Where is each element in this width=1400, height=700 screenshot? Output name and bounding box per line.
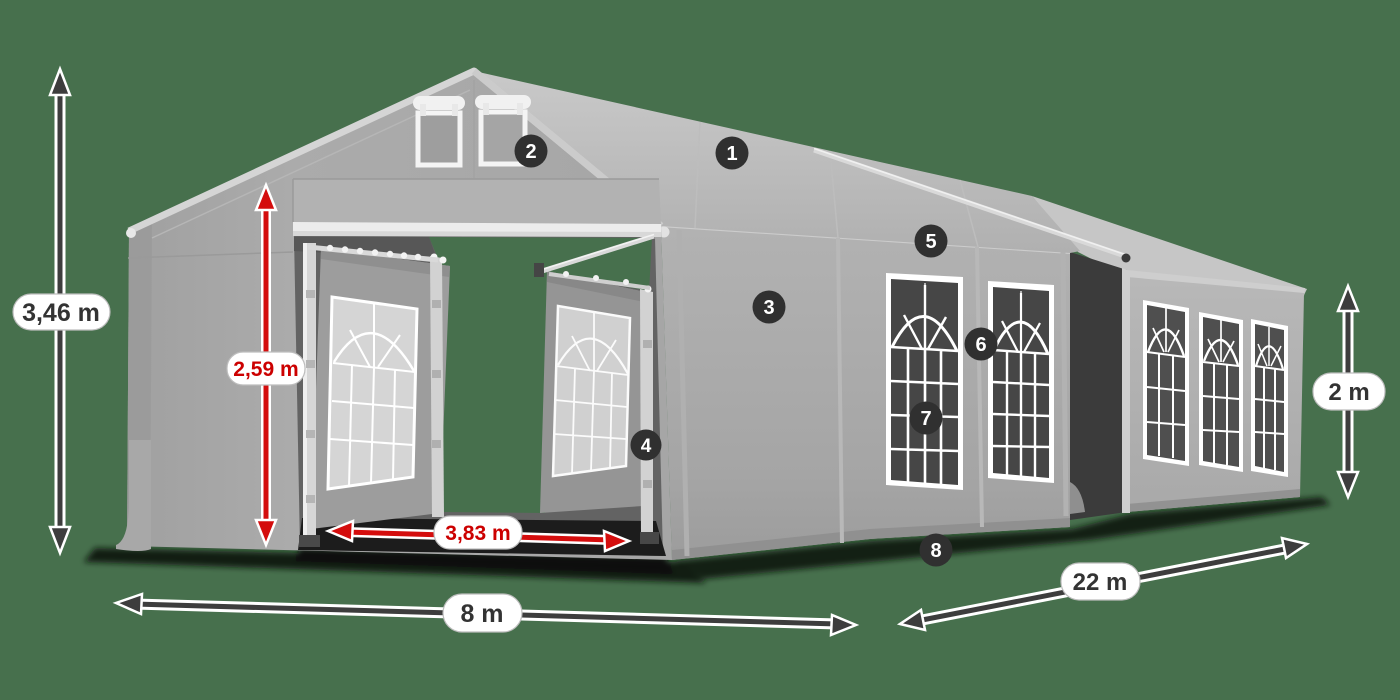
svg-text:1: 1	[726, 143, 737, 165]
svg-text:2: 2	[525, 141, 536, 163]
svg-text:3: 3	[763, 297, 774, 319]
svg-text:8: 8	[930, 540, 941, 562]
svg-text:6: 6	[975, 334, 986, 356]
svg-text:8 m: 8 m	[460, 600, 503, 628]
svg-text:22 m: 22 m	[1073, 569, 1128, 596]
svg-text:3,46 m: 3,46 m	[22, 299, 100, 327]
svg-text:7: 7	[920, 408, 931, 430]
svg-text:2,59 m: 2,59 m	[233, 358, 298, 381]
svg-text:4: 4	[641, 436, 652, 457]
svg-text:2 m: 2 m	[1328, 379, 1369, 406]
svg-text:3,83 m: 3,83 m	[445, 522, 510, 545]
svg-text:5: 5	[925, 231, 936, 253]
